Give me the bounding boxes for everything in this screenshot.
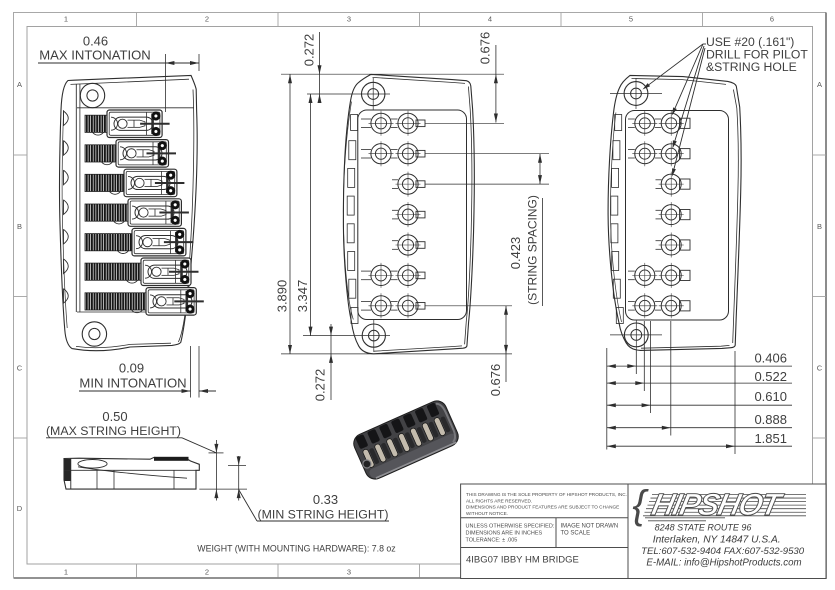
svg-text:0.423: 0.423 [508,237,523,270]
svg-text:0.676: 0.676 [488,364,503,397]
svg-text:DIMENSIONS ARE IN INCHES: DIMENSIONS ARE IN INCHES [466,530,543,536]
svg-text:5: 5 [629,15,633,24]
svg-text:1: 1 [64,15,68,24]
svg-text:6: 6 [770,15,774,24]
svg-text:(MIN STRING HEIGHT): (MIN STRING HEIGHT) [258,508,389,522]
svg-text:0.610: 0.610 [754,389,787,404]
svg-text:3.890: 3.890 [275,280,290,313]
svg-text:C: C [17,364,23,373]
svg-text:4: 4 [488,15,492,24]
svg-text:0.522: 0.522 [754,369,787,384]
svg-text:MAX INTONATION: MAX INTONATION [39,48,151,63]
svg-text:0.272: 0.272 [302,34,317,67]
svg-text:0.50: 0.50 [102,409,127,424]
svg-text:D: D [17,504,23,513]
svg-text:3: 3 [347,568,351,577]
svg-text:MIN INTONATION: MIN INTONATION [79,376,186,391]
svg-text:8248 STATE ROUTE 96: 8248 STATE ROUTE 96 [655,523,752,533]
svg-text:2: 2 [205,15,209,24]
svg-text:4IBG07 IBBY HM BRIDGE: 4IBG07 IBBY HM BRIDGE [466,555,579,566]
svg-text:A: A [817,80,822,89]
svg-text:B: B [817,222,822,231]
svg-text:0.33: 0.33 [313,492,338,507]
svg-text:ALL RIGHTS ARE RESERVED.: ALL RIGHTS ARE RESERVED. [466,498,532,503]
svg-text:TOLERANCE: ± .005: TOLERANCE: ± .005 [466,537,518,543]
svg-text:2: 2 [205,568,209,577]
svg-text:1: 1 [64,568,68,577]
svg-text:WEIGHT (WITH MOUNTING HARDWARE: WEIGHT (WITH MOUNTING HARDWARE): 7.8 oz [197,544,395,554]
svg-text:Interlaken, NY 14847 U.S.A.: Interlaken, NY 14847 U.S.A. [653,535,781,546]
svg-text:(STRING SPACING): (STRING SPACING) [526,195,540,305]
svg-text:0.406: 0.406 [754,351,787,366]
svg-text:IMAGE NOT DRAWN: IMAGE NOT DRAWN [561,523,619,529]
svg-text:DIMENSIONS AND PRODUCT FEATURE: DIMENSIONS AND PRODUCT FEATURES ARE SUBJ… [466,505,619,510]
svg-text:0.09: 0.09 [119,361,144,376]
svg-text:1.851: 1.851 [754,431,787,446]
svg-text:WITHOUT NOTICE.: WITHOUT NOTICE. [466,511,508,516]
svg-text:&STRING HOLE: &STRING HOLE [706,60,797,74]
svg-text:3: 3 [347,15,351,24]
svg-text:0.272: 0.272 [313,369,328,402]
svg-text:0.888: 0.888 [754,412,787,427]
svg-text:TO SCALE: TO SCALE [561,530,591,536]
svg-text:HIPSHOT: HIPSHOT [649,487,787,522]
svg-text:UNLESS OTHERWISE SPECIFIED:: UNLESS OTHERWISE SPECIFIED: [466,523,555,529]
svg-text:E-MAIL: info@HipshotProducts.c: E-MAIL: info@HipshotProducts.com [646,558,801,569]
svg-text:3.347: 3.347 [295,280,310,313]
svg-text:THIS DRAWING IS THE SOLE PROPE: THIS DRAWING IS THE SOLE PROPERTY OF HIP… [466,492,627,497]
svg-text:A: A [17,80,22,89]
svg-text:TEL:607-532-9404 FAX:607-532-9: TEL:607-532-9404 FAX:607-532-9530 [641,546,805,557]
svg-text:0.676: 0.676 [478,32,493,65]
svg-text:C: C [817,364,823,373]
svg-text:B: B [17,222,22,231]
svg-text:0.46: 0.46 [83,34,108,49]
svg-text:(MAX STRING HEIGHT): (MAX STRING HEIGHT) [46,424,181,438]
